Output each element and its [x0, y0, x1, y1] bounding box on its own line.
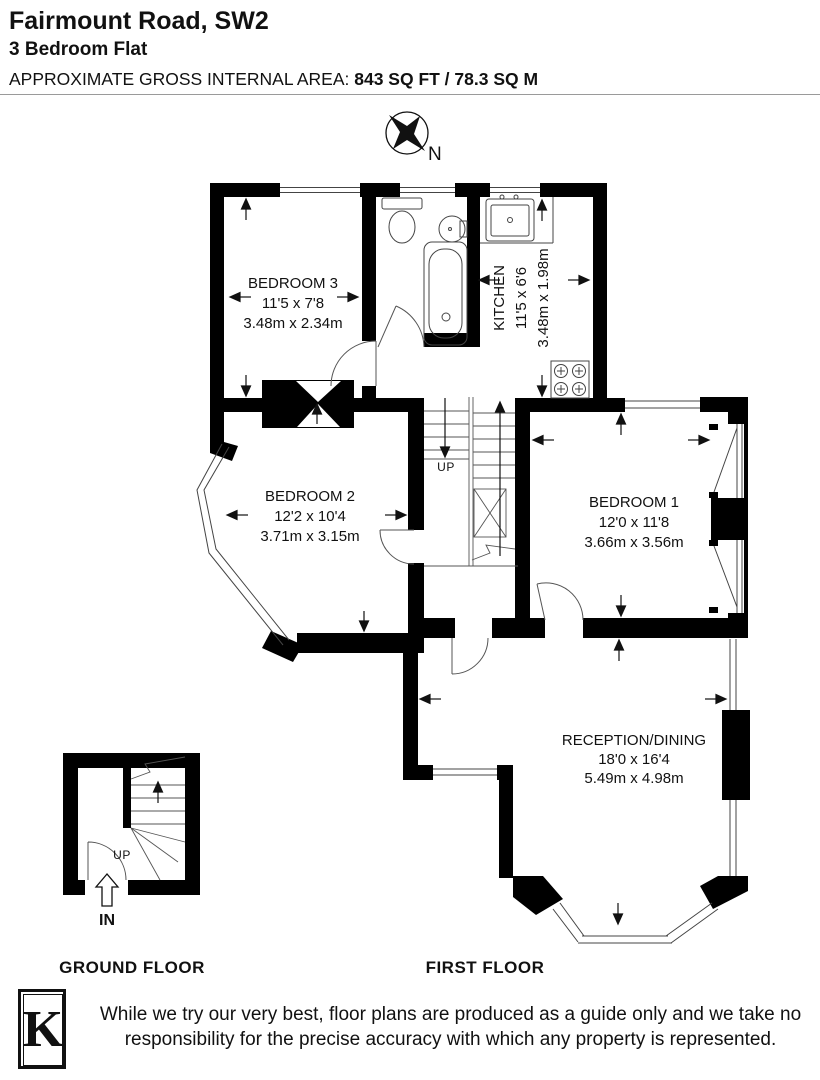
bedroom-1-label: BEDROOM 1 12'0 x 11'8 3.66m x 3.56m [584, 494, 683, 551]
svg-text:11'5 x 7'8: 11'5 x 7'8 [262, 295, 324, 312]
bathroom-door [378, 306, 424, 347]
ground-floor-up-label: UP [113, 848, 131, 862]
bedroom-3-label: BEDROOM 3 11'5 x 7'8 3.48m x 2.34m [243, 275, 342, 332]
bedroom-2-label: BEDROOM 2 12'2 x 10'4 3.71m x 3.15m [260, 488, 359, 545]
stove-icon [551, 361, 589, 398]
kitchen-label: KITCHEN 11'5 x 6'6 3.48m x 1.98m [491, 248, 552, 347]
reception-dining-label: RECEPTION/DINING 18'0 x 16'4 5.49m x 4.9… [562, 732, 706, 787]
compass-star-icon [389, 115, 425, 151]
compass: N [386, 112, 442, 165]
agency-logo-frame: K [23, 994, 63, 1066]
svg-text:BEDROOM 1: BEDROOM 1 [589, 494, 679, 511]
first-floor-up-label: UP [437, 460, 455, 474]
svg-text:12'2 x 10'4: 12'2 x 10'4 [274, 508, 346, 525]
bathroom-fixtures [382, 198, 467, 345]
bedroom-3-door [331, 341, 376, 386]
svg-text:BEDROOM 2: BEDROOM 2 [265, 488, 355, 505]
ground-floor-caption: GROUND FLOOR [59, 958, 205, 977]
kitchen-sink-icon [486, 195, 534, 241]
svg-text:18'0 x 16'4: 18'0 x 16'4 [598, 751, 670, 768]
first-floor-caption: FIRST FLOOR [426, 958, 545, 977]
svg-text:3.48m x 2.34m: 3.48m x 2.34m [243, 315, 342, 332]
basin-icon [439, 216, 467, 242]
agency-logo: K [18, 989, 66, 1069]
svg-text:3.66m x 3.56m: 3.66m x 3.56m [584, 534, 683, 551]
toilet-icon [382, 198, 422, 243]
reception-door [452, 638, 488, 674]
bedroom-1-door [537, 583, 583, 620]
disclaimer-text: While we try our very best, floor plans … [98, 1002, 803, 1053]
ground-floor-plan: UP IN [63, 753, 200, 929]
bedroom-2-door [380, 530, 414, 564]
svg-text:RECEPTION/DINING: RECEPTION/DINING [562, 732, 706, 749]
entrance-in-label: IN [99, 912, 115, 929]
svg-text:3.71m x 3.15m: 3.71m x 3.15m [260, 528, 359, 545]
svg-text:BEDROOM 3: BEDROOM 3 [248, 275, 338, 292]
floor-plan-drawing: N [0, 0, 820, 1080]
compass-north-label: N [428, 144, 442, 165]
svg-text:11'5 x 6'6: 11'5 x 6'6 [513, 267, 530, 329]
svg-text:12'0 x 11'8: 12'0 x 11'8 [599, 514, 670, 531]
first-floor-plan: UP [197, 183, 750, 943]
svg-text:KITCHEN: KITCHEN [491, 265, 508, 331]
bathtub-icon [424, 242, 467, 345]
agency-logo-letter: K [23, 1004, 63, 1056]
svg-text:3.48m x 1.98m: 3.48m x 1.98m [535, 248, 552, 347]
svg-text:5.49m x 4.98m: 5.49m x 4.98m [584, 770, 683, 787]
staircase: UP [424, 397, 518, 566]
